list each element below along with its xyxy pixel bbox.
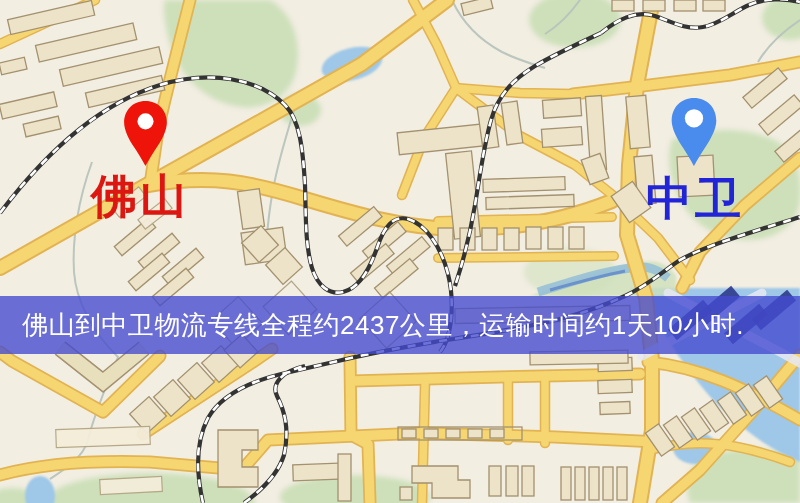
destination-label: 中卫: [635, 174, 755, 222]
origin-pin[interactable]: [122, 100, 169, 168]
map-pin-icon: [669, 97, 719, 168]
map-canvas: 佛山到中卫物流专线全程约2437公里，运输时间约1天10小时. 佛山 中卫: [0, 0, 800, 503]
base-map: [0, 0, 800, 503]
origin-label: 佛山: [80, 172, 200, 220]
route-banner: 佛山到中卫物流专线全程约2437公里，运输时间约1天10小时.: [0, 296, 800, 354]
route-banner-text: 佛山到中卫物流专线全程约2437公里，运输时间约1天10小时.: [22, 308, 744, 343]
destination-pin[interactable]: [669, 97, 719, 168]
map-pin-icon: [122, 100, 169, 168]
